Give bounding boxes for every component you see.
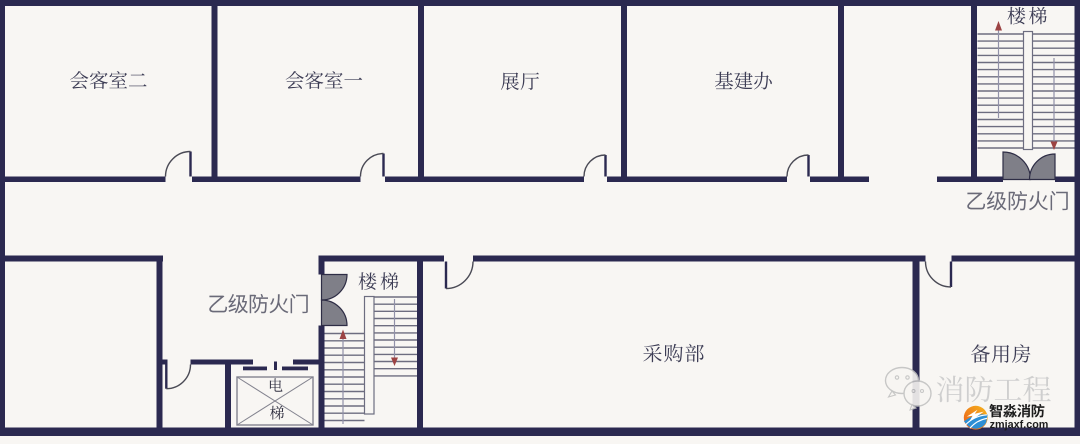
svg-text:zmjaxf.com: zmjaxf.com bbox=[990, 419, 1049, 431]
